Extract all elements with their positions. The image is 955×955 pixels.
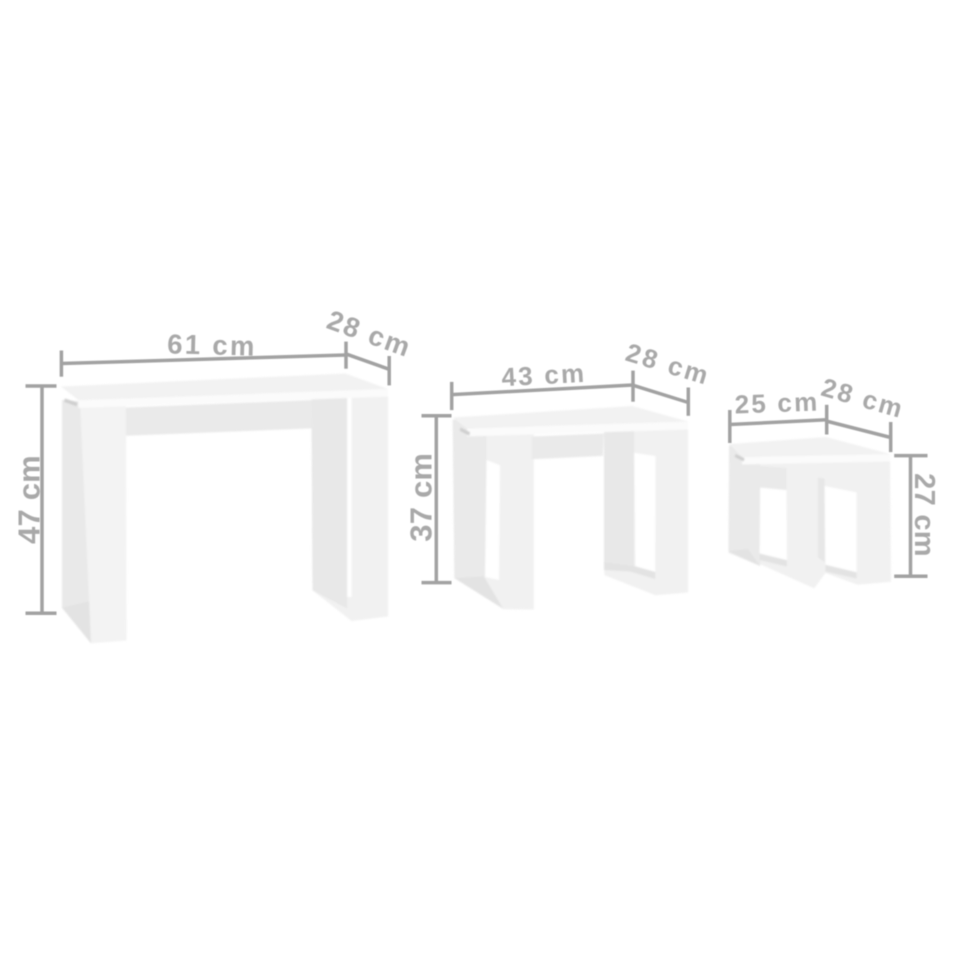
svg-text:28 cm: 28 cm (818, 372, 908, 424)
svg-text:61 cm: 61 cm (167, 328, 257, 361)
svg-text:28 cm: 28 cm (622, 337, 714, 391)
svg-text:47 cm: 47 cm (12, 455, 47, 544)
svg-text:37 cm: 37 cm (404, 453, 439, 542)
svg-text:25 cm: 25 cm (734, 387, 820, 420)
svg-text:27 cm: 27 cm (908, 473, 940, 557)
svg-text:43 cm: 43 cm (501, 358, 587, 392)
